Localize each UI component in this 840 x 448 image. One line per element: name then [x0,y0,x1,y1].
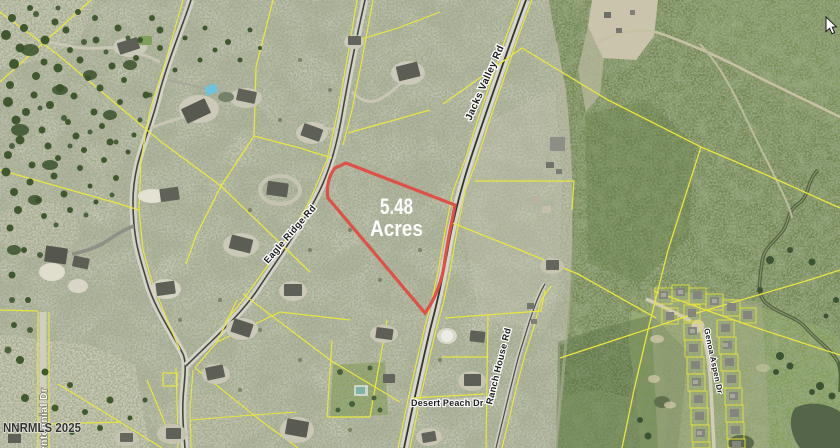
svg-text:Acres: Acres [370,216,423,241]
svg-text:NNRMLS 2025: NNRMLS 2025 [3,420,81,435]
svg-text:Centennial Dr: Centennial Dr [38,388,50,448]
svg-text:Desert Peach Dr: Desert Peach Dr [411,398,484,408]
